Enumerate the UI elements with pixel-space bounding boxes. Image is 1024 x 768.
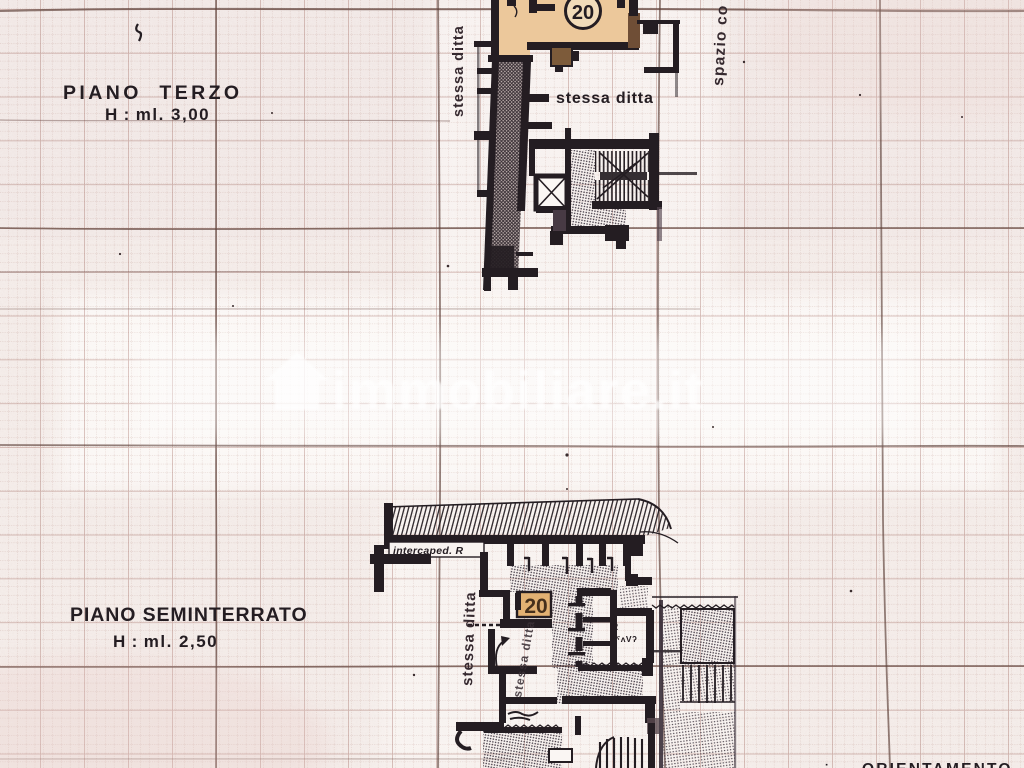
svg-text:20: 20: [524, 595, 547, 618]
svg-text:R: R: [611, 622, 619, 633]
svg-text:PIANO SEMINTERRATO: PIANO SEMINTERRATO: [70, 604, 308, 626]
svg-text:stessa ditta: stessa ditta: [459, 591, 479, 686]
svg-text:stessa ditta: stessa ditta: [451, 25, 467, 117]
svg-text:stessa ditta: stessa ditta: [556, 90, 654, 107]
svg-text:PIANO TERZO: PIANO TERZO: [63, 82, 242, 104]
svg-text:H : ml. 3,00: H : ml. 3,00: [105, 105, 210, 124]
svg-text:20: 20: [572, 2, 594, 24]
svg-text:ˁʌVʔ: ˁʌVʔ: [617, 634, 637, 644]
svg-text:ORIENTAMENTO: ORIENTAMENTO: [862, 761, 1013, 768]
svg-text:. :: . :: [818, 759, 829, 768]
svg-text:H : ml. 2,50: H : ml. 2,50: [113, 632, 218, 651]
svg-text:immobiliare.it: immobiliare.it: [332, 361, 704, 421]
